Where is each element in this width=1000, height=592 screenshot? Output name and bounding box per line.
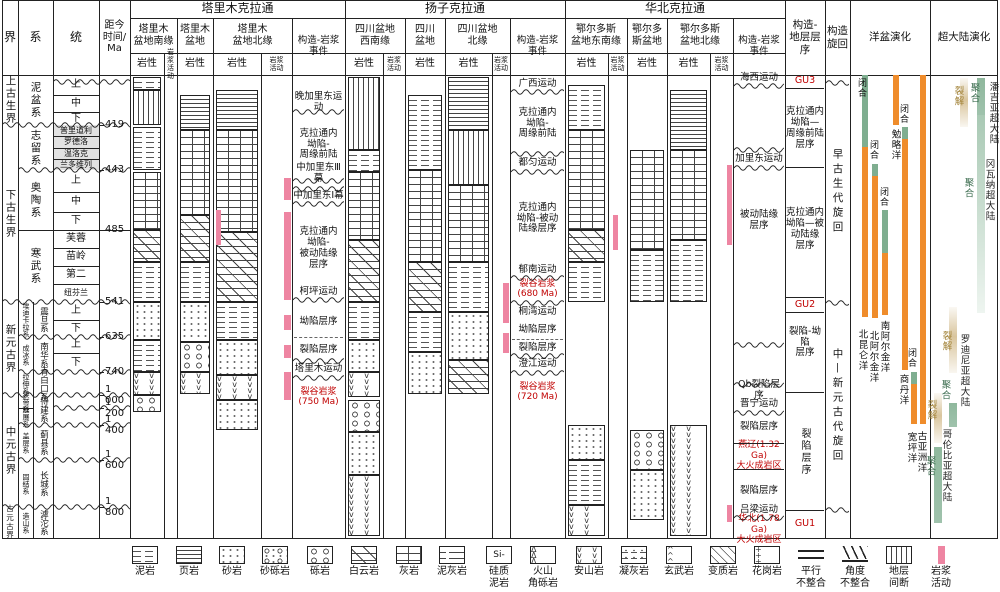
time-tick-label: 1 400 [105,419,129,431]
wavy-unconformity-line [826,507,849,513]
cycle-label: 早古生代旋回 [832,149,843,236]
lithology-segment [670,240,707,302]
grid-line [850,0,851,538]
legend-swatch: Si- [486,546,512,564]
lithology-segment [180,130,210,215]
time-tick-label: 740 [105,366,129,378]
era-label: 新元古界 [5,324,16,374]
legend-label: 泥灰岩 [429,566,475,590]
lithology-segment [216,340,258,375]
lithology-segment [448,312,489,360]
grid-line [608,53,609,538]
magmatism-bar [284,345,291,358]
era-label: 下古生界 [5,189,16,239]
unconformity-dashed-line [512,339,563,340]
gu-marker-label: GU1 [786,518,824,531]
time-tick-label: 635 [105,331,129,343]
ocean-label: 宽坪洋 [906,432,916,464]
stage-label: 上 [53,75,99,95]
wavy-unconformity-line [826,80,849,86]
supercontinent-label: 哥伦比亚超大陆 [941,429,951,503]
lithology-segment [348,172,380,240]
magmatism-bar [503,283,509,323]
column-header-right-3: 超大陆演化 [930,0,998,75]
table-bottom-border [2,538,998,539]
legend-label: 页岩 [166,566,212,590]
lithology-header: 岩性 [565,53,608,75]
wavy-unconformity-line [734,410,784,416]
grid-line [345,0,346,538]
period-cn-label: 蓟县系 [39,430,48,456]
lithology-header: 岩性 [405,53,445,75]
lithology-segment [568,130,605,230]
stage-line [53,192,99,193]
legend-swatch [710,546,736,564]
legend-swatch: Δ Δ Δ Δ Δ Δ Δ Δ Δ Δ Δ Δ Δ Δ Δ Δ Δ Δ Δ Δ [530,546,556,564]
movement-label: 都匀运动 [511,157,564,169]
series-column-header: 统 [53,0,99,75]
magmatism-bar [216,210,221,245]
tectonic-magmatic-events-header: 构造-岩浆 事件 [733,18,785,75]
magmatism-bar [284,315,291,330]
sequence-label: 克拉通内 坳陷- 周缘前陆 [293,127,344,163]
lithology-segment [348,432,380,475]
wavy-unconformity-line [511,353,564,359]
wavy-unconformity-line [293,109,344,115]
basin-header: 鄂尔多 斯盆地 [627,18,667,53]
basin-header: 鄂尔多斯 盆地东南缘 [565,18,627,53]
time-tick-mark [99,408,104,409]
lithology-segment [180,262,210,302]
wavy-unconformity-line [734,515,784,521]
legend-swatch [307,546,333,564]
grid-line [177,18,178,538]
event-divider-line [734,443,784,444]
ocean-closure-segment [902,127,908,139]
lithology-segment [348,240,380,302]
lithology-segment [630,250,664,302]
legend-label: 砂岩 [209,566,255,590]
wavy-unconformity-line [293,186,344,192]
sequence-label: 裂陷层序 [734,485,784,497]
legend-swatch [439,546,465,564]
stage-line [53,112,99,113]
sequence-label: 裂陷-坳陷 层序 [786,330,824,356]
lithology-segment [448,360,489,394]
stage-line [53,284,99,285]
magmatic-event-label: 裂谷岩浆 (750 Ma) [293,385,344,409]
gu-marker-label: GU2 [786,299,824,312]
legend-swatch: + + + + + + + + + + + + + + + + + + + + [754,546,780,564]
grid-line [261,53,262,538]
magmatism-header: 岩浆 活动 [492,53,510,75]
stage-line [53,248,99,249]
lithology-segment: v v v v v v v v v v v v v v v v v v v v … [348,372,380,397]
ocean-label: 南阿尔金洋 [879,321,889,374]
movement-label: 桐湾运动 [511,306,564,318]
legend-label: 角度 不整合 [832,566,878,590]
lithology-segment [180,215,210,262]
lithology-segment [133,90,161,125]
legend-swatch [132,546,158,564]
sequence-label: 裂陷层序 [734,421,784,433]
period-label: 奥陶系 [30,181,41,219]
legend-label: 安山岩 [566,566,612,590]
lithology-segment [408,262,442,312]
legend-swatch-magma [938,546,945,564]
lithology-segment [348,400,380,432]
legend-swatch-angunc [842,546,868,564]
legend-swatch [396,546,422,564]
movement-label: 加里东运动 [734,153,784,165]
gu-marker-label: GU3 [786,75,824,88]
legend-label: 砾岩 [297,566,343,590]
grid-line [445,18,446,538]
stage-label: 芙蓉 [53,230,99,248]
time-column-header: 距今 时间/ Ma [99,0,130,75]
lithology-segment: v v v v v v v v v v v v v v v v v v v v … [216,375,258,400]
closure-label: 闭合 [856,78,865,98]
legend-label: 火山 角砾岩 [520,566,566,590]
sequence-label: 裂陷层序 [799,428,809,476]
stage-line [53,266,99,267]
event-divider-line [734,469,784,470]
stratigraphic-correlation-figure: 界系统距今 时间/ Ma构造- 地层层序构造 旋回洋盆演化超大陆演化塔里木克拉通… [0,0,1000,592]
legend-label: 地层 间断 [876,566,922,590]
legend-label: 白云岩 [341,566,387,590]
magmatic-event-label: 燕辽(1.32 Ga) 大火成岩区 [734,444,784,468]
basin-header: 塔里木 盆地北缘 [213,18,292,53]
tectonic-magmatic-events-header: 构造-岩浆 事件 [510,18,565,75]
cycle-label: 中—新元古代旋回 [832,348,843,464]
supercontinent-label: 聚合 [969,83,979,104]
lithology-segment [448,262,489,312]
column-header-right-0: 构造- 地层层序 [785,0,825,75]
supercontinent-label: 聚合 [925,456,935,477]
table-left-border [2,0,3,538]
magmatic-event-label: 华北(1.78 Ga) 大火成岩区 [734,518,784,542]
basin-header: 四川盆地 北缘 [445,18,510,53]
lithology-segment [348,340,380,372]
magmatism-bar [284,212,291,300]
legend-swatch [219,546,245,564]
wavy-unconformity-line [293,297,344,303]
lithology-segment [133,77,161,90]
lithology-segment [630,150,664,250]
craton-title: 塔里木克拉通 [130,0,345,18]
time-tick-mark [99,507,104,508]
wavy-unconformity-line [293,201,344,207]
lithology-segment [408,95,442,170]
lithology-segment [348,302,380,340]
grid-line [130,0,131,538]
movement-label: 晚加里东运动 [293,97,344,109]
stage-label: 中 [53,95,99,112]
ocean-bar [902,139,908,370]
period-cn-label: 长城系 [39,471,48,497]
closure-label: 闭合 [878,187,887,207]
movement-label: 澄江运动 [511,358,564,370]
magmatism-header: 岩浆 活动 [261,53,292,75]
lithology-segment [630,470,664,520]
lithology-segment [133,302,161,340]
lithology-segment [216,302,258,340]
stage-line [53,148,99,149]
closure-label: 闭合 [898,104,907,124]
ocean-label: 北阿尔金洋 [868,331,878,384]
grid-line [565,0,566,538]
wavy-unconformity-line [734,165,784,171]
lithology-segment: v v v v v v v v v v v v v v v v v v v v … [133,372,161,395]
ocean-closure-segment [872,164,878,176]
lithology-segment [408,170,442,262]
sequence-divider-line [786,392,824,393]
stage-line [53,159,99,160]
wavy-unconformity-line [53,79,130,85]
supercontinent-label: 冈瓦纳超大陆 [984,159,994,222]
lithology-segment [670,90,707,150]
supercontinent-label: 潘吉亚超大陆 [988,82,998,145]
sequence-label: 克拉通内 坳陷- 周缘前陆 [511,106,564,142]
period-cn-label: 滹沱系 [39,510,48,536]
craton-title: 扬子克拉通 [345,0,565,18]
column-header-right-2: 洋盆演化 [850,0,930,75]
period-cn-label: 待建系 [39,397,48,423]
magmatism-header: 岩浆 活动 [710,53,733,75]
stage-label: 罗德洛 [53,136,99,148]
magmatism-bar [503,333,509,353]
sequence-label: 坳陷层序 [293,316,344,328]
stage-label: 上 [53,170,99,192]
grid-line [213,18,214,538]
sequence-divider-line [786,312,824,313]
grid-line [710,53,711,538]
magmatism-header: 岩浆 活动 [164,53,177,75]
wavy-unconformity-line [511,275,564,281]
wavy-unconformity-line [734,342,784,348]
legend-label: 变质岩 [700,566,746,590]
grid-line [492,53,493,538]
ocean-bar [862,147,868,317]
sequence-label: 克拉通内 坳陷— 周缘前陆 层序 [786,103,824,155]
period-intl-label: 埃迪卡拉系 [22,302,29,337]
lithology-segment [133,230,161,262]
magmatism-bar [613,215,618,250]
lithology-segment [133,340,161,372]
supercontinent-label: 聚合 [940,380,950,401]
legend-label: 砂砾岩 [252,566,298,590]
supercontinent-assembly-bar [949,403,957,427]
legend-label: 泥岩 [122,566,168,590]
time-tick-label: 419 [105,119,129,131]
stage-line [53,136,99,137]
stage-label: 下 [53,212,99,230]
magmatism-bar [727,165,732,245]
magmatic-event-label: 裂谷岩浆 (720 Ma) [511,380,564,404]
time-tick-mark [99,372,104,373]
craton-title: 华北克拉通 [565,0,785,18]
wavy-unconformity-line [511,169,564,175]
lithology-segment [408,312,442,352]
grid-line [405,18,406,538]
sequence-divider-line [786,510,824,511]
wavy-unconformity-line [511,300,564,306]
period-intl-label: 盖层系 [22,432,29,453]
legend-swatch: v v v v v v v v v v v v v v v v v v v v [576,546,602,564]
lithology-segment [568,230,605,262]
stage-label: 中 [53,192,99,212]
lithology-header: 岩性 [627,53,667,75]
lithology-header: 岩性 [130,53,164,75]
time-tick-mark [99,125,104,126]
wavy-unconformity-line [511,89,564,95]
sequence-label: 裂陷层序 [293,344,344,356]
stage-line [53,320,99,321]
lithology-header: 岩性 [213,53,261,75]
period-cn-label: 震旦系 [39,307,48,333]
period-intl-label: 固结系 [22,473,29,494]
legend-label: 岩浆 活动 [918,566,964,590]
lithology-segment [568,262,605,302]
lithology-segment [348,77,380,150]
lithology-segment [180,302,210,342]
lithology-segment [448,130,489,185]
era-label: 中元古界 [5,426,16,476]
sequence-divider-line [786,167,824,168]
legend-label: 平行 不整合 [788,566,834,590]
time-tick-mark [99,302,104,303]
closure-label: 闭合 [906,348,915,368]
lithology-segment [568,425,605,460]
lithology-segment [180,95,210,130]
time-tick-label: 1 600 [105,454,129,466]
tectonic-magmatic-events-header: 构造-岩浆 事件 [292,18,345,75]
period-label: 志留系 [30,129,41,167]
period-label: 寒武系 [30,247,41,285]
lithology-segment [216,130,258,232]
lithology-segment [133,127,161,170]
lithology-segment [133,395,161,412]
time-tick-label: 1 800 [105,501,129,513]
legend-label: 玄武岩 [656,566,702,590]
time-tick-mark [99,425,104,426]
wavy-unconformity-line [734,382,784,388]
time-tick-label: 1 200 [105,402,129,414]
wavy-unconformity-line [511,370,564,376]
ocean-bar [911,384,917,424]
movement-label: 塔里木运动 [293,363,344,375]
magmatism-header: 岩浆 活动 [383,53,405,75]
legend-label: 花岗岩 [744,566,790,590]
lithology-segment [670,150,707,240]
sequence-label: 克拉通内 坳陷-被动 陆缘层序 [511,201,564,237]
magmatism-bar [727,505,732,522]
time-tick-mark [99,460,104,461]
legend-swatch [351,546,377,564]
ocean-closure-segment [882,210,888,253]
supercontinent-label: 裂解 [953,86,963,107]
ocean-label: 勉略洋 [890,129,900,161]
lithology-segment: v v v v v v v v v v v v v v v v v v v v … [180,372,210,394]
ocean-label: 北昆仑洋 [857,329,867,371]
time-tick-mark [99,170,104,171]
grid-line [667,18,668,538]
supercontinent-label: 裂解 [926,400,936,421]
magmatism-header: 岩浆 活动 [608,53,627,75]
supercontinent-label: 罗迪尼亚超大陆 [959,334,969,408]
time-tick-mark [99,395,104,396]
wavy-unconformity-line [293,358,344,364]
stage-line [53,353,99,354]
legend-label: 凝灰岩 [611,566,657,590]
lithology-header: 岩性 [667,53,710,75]
sequence-label: 克拉通内 坳陷—被 动陆缘 层序 [786,204,824,256]
lithology-segment [216,232,258,302]
sequence-divider-line [786,88,824,89]
sequence-label: 克拉通内 坳陷- 被动陆缘 层序 [293,225,344,273]
basin-header: 四川 盆地 [405,18,445,53]
time-tick-label: 541 [105,296,129,308]
lithology-segment [133,262,161,302]
legend-label: 灰岩 [386,566,432,590]
wavy-unconformity-line [293,375,344,381]
lithology-segment [133,172,161,230]
stage-label: 第二 [53,266,99,284]
era-column-header: 界 [2,0,18,75]
wavy-unconformity-line [734,147,784,153]
sequence-label: 被动陆缘 层序 [734,209,784,233]
closure-label: 闭合 [868,140,877,160]
basin-header: 四川盆地 西南缘 [345,18,405,53]
legend-swatch-parunc [798,546,824,564]
wavy-unconformity-line [511,151,564,157]
period-line [18,408,33,409]
wavy-unconformity-line [826,300,849,306]
era-label: 上古生界 [5,75,16,125]
time-tick-label: 443 [105,164,129,176]
legend-swatch: ^ ^ ^ ^ ^ ^ ^ ^ ^ ^ ^ ^ ^ ^ ^ ^ ^ ^ ^ ^ [666,546,692,564]
basin-header: 塔里木 盆地 [177,18,213,53]
stage-label: 温洛克 [53,148,99,159]
legend-swatch [886,546,912,564]
legend-swatch [176,546,202,564]
legend-label: 硅质 泥岩 [476,566,522,590]
lithology-segment: v v v v v v v v v v v v v v v v v v v v … [348,475,380,536]
lithology-segment [216,90,258,130]
wavy-unconformity-line [293,178,344,184]
movement-label: 晋宁运动 [734,398,784,410]
period-intl-label: 成冰系 [22,344,29,365]
lithology-segment [630,430,664,470]
supercontinent-label: 聚合 [963,178,973,199]
lithology-segment [408,352,442,394]
era-label: 古元古界 [3,507,17,538]
lithology-segment [216,400,258,430]
stage-line [53,95,99,96]
ocean-bar [882,253,888,315]
legend-swatch [621,546,647,564]
grid-line [627,18,628,538]
period-column-header: 系 [18,0,53,75]
legend-swatch [262,546,288,564]
wavy-unconformity-line [734,83,784,89]
period-cn-label: 南华系 [39,342,48,368]
stage-label: 苗岭 [53,248,99,266]
lithology-segment [448,185,489,262]
time-tick-label: 485 [105,224,129,236]
magmatism-bar [284,178,291,200]
period-label: 泥盆系 [30,81,41,119]
